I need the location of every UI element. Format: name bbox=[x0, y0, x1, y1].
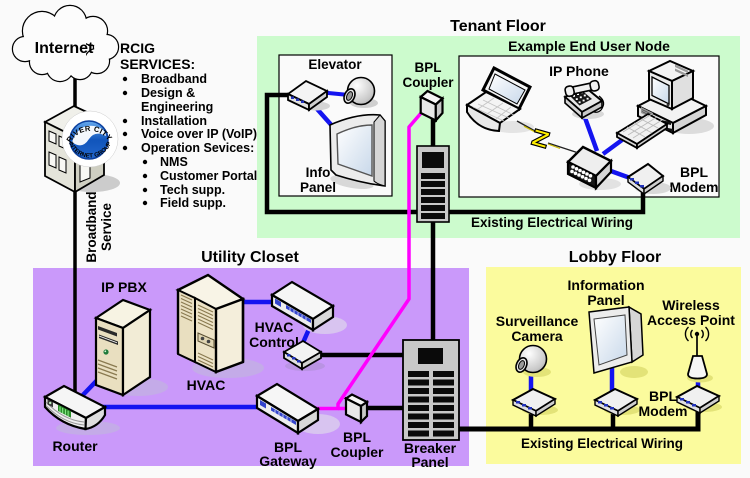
svg-text:Info: Info bbox=[306, 165, 331, 180]
svg-text:Utility Closet: Utility Closet bbox=[201, 249, 299, 266]
svg-text:Camera: Camera bbox=[511, 328, 563, 344]
svg-text:Design &: Design & bbox=[141, 86, 195, 100]
svg-text:SERVICES:: SERVICES: bbox=[120, 56, 195, 72]
svg-text:Field supp.: Field supp. bbox=[160, 196, 226, 210]
svg-text:Lobby Floor: Lobby Floor bbox=[569, 249, 661, 266]
svg-text:Voice over IP (VoIP): Voice over IP (VoIP) bbox=[141, 127, 257, 141]
svg-text:Tech supp.: Tech supp. bbox=[160, 183, 225, 197]
svg-text:BPL: BPL bbox=[343, 429, 371, 445]
svg-text:Existing Electrical Wiring: Existing Electrical Wiring bbox=[471, 215, 633, 230]
svg-text:Engineering: Engineering bbox=[141, 100, 213, 114]
svg-text:IP Phone: IP Phone bbox=[549, 63, 609, 79]
svg-text:HVAC: HVAC bbox=[187, 377, 226, 393]
svg-text:Broadband: Broadband bbox=[84, 191, 99, 262]
svg-text:BPL: BPL bbox=[415, 60, 442, 75]
svg-text:Internet: Internet bbox=[35, 40, 94, 57]
svg-text:Broadband: Broadband bbox=[141, 72, 207, 86]
svg-text:Tenant Floor: Tenant Floor bbox=[450, 18, 546, 35]
svg-text:Panel: Panel bbox=[587, 292, 624, 308]
svg-text:Existing Electrical Wiring: Existing Electrical Wiring bbox=[521, 436, 683, 451]
svg-text:Gateway: Gateway bbox=[259, 453, 317, 469]
svg-text:NMS: NMS bbox=[160, 155, 188, 169]
svg-text:Coupler: Coupler bbox=[402, 75, 454, 90]
svg-text:BPL: BPL bbox=[649, 388, 677, 404]
svg-text:Router: Router bbox=[52, 438, 98, 454]
svg-text:Operation Sevices:: Operation Sevices: bbox=[141, 141, 254, 155]
svg-text:Panel: Panel bbox=[411, 454, 448, 470]
svg-text:Modem: Modem bbox=[670, 179, 719, 195]
svg-text:BPL: BPL bbox=[680, 164, 708, 180]
svg-text:Elevator: Elevator bbox=[308, 57, 362, 72]
svg-text:Surveillance: Surveillance bbox=[496, 313, 579, 329]
svg-text:HVAC: HVAC bbox=[255, 319, 294, 335]
svg-text:Coupler: Coupler bbox=[331, 444, 384, 460]
svg-text:Service: Service bbox=[99, 202, 114, 251]
svg-text:RCIG: RCIG bbox=[120, 40, 155, 56]
svg-text:Information: Information bbox=[568, 277, 645, 293]
svg-text:Access Point: Access Point bbox=[647, 312, 735, 328]
svg-text:Panel: Panel bbox=[300, 180, 336, 195]
svg-text:Modem: Modem bbox=[639, 403, 688, 419]
svg-text:Example End User Node: Example End User Node bbox=[508, 38, 670, 54]
svg-text:IP PBX: IP PBX bbox=[101, 279, 147, 295]
svg-text:Customer Portal: Customer Portal bbox=[160, 169, 257, 183]
svg-text:Wireless: Wireless bbox=[662, 297, 720, 313]
svg-text:Installation: Installation bbox=[141, 114, 207, 128]
